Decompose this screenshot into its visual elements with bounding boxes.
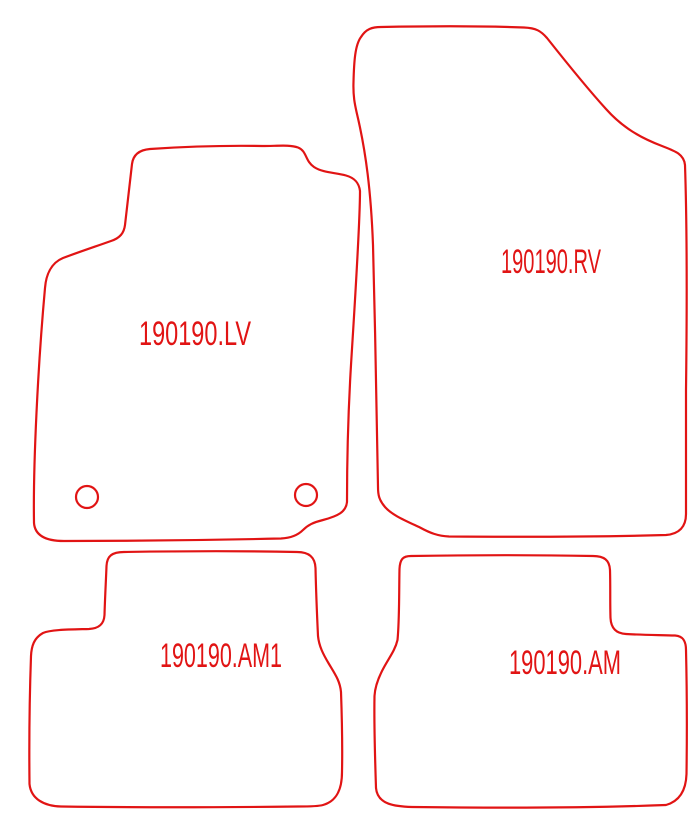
mat-label-front-right: 190190.RV [501, 243, 601, 281]
mat-outline-front-right [353, 26, 686, 536]
fixing-hole-left [76, 486, 98, 508]
mat-diagram-canvas: 190190.LV 190190.RV 190190.AM1 190190.AM [0, 0, 691, 831]
mat-label-rear-left: 190190.AM1 [160, 637, 282, 675]
mat-label-rear-right: 190190.AM [509, 644, 621, 682]
fixing-hole-right [295, 484, 317, 506]
mat-label-front-left: 190190.LV [139, 315, 251, 353]
mats-drawing: 190190.LV 190190.RV 190190.AM1 190190.AM [0, 0, 691, 831]
mat-outline-rear-left [29, 551, 342, 807]
